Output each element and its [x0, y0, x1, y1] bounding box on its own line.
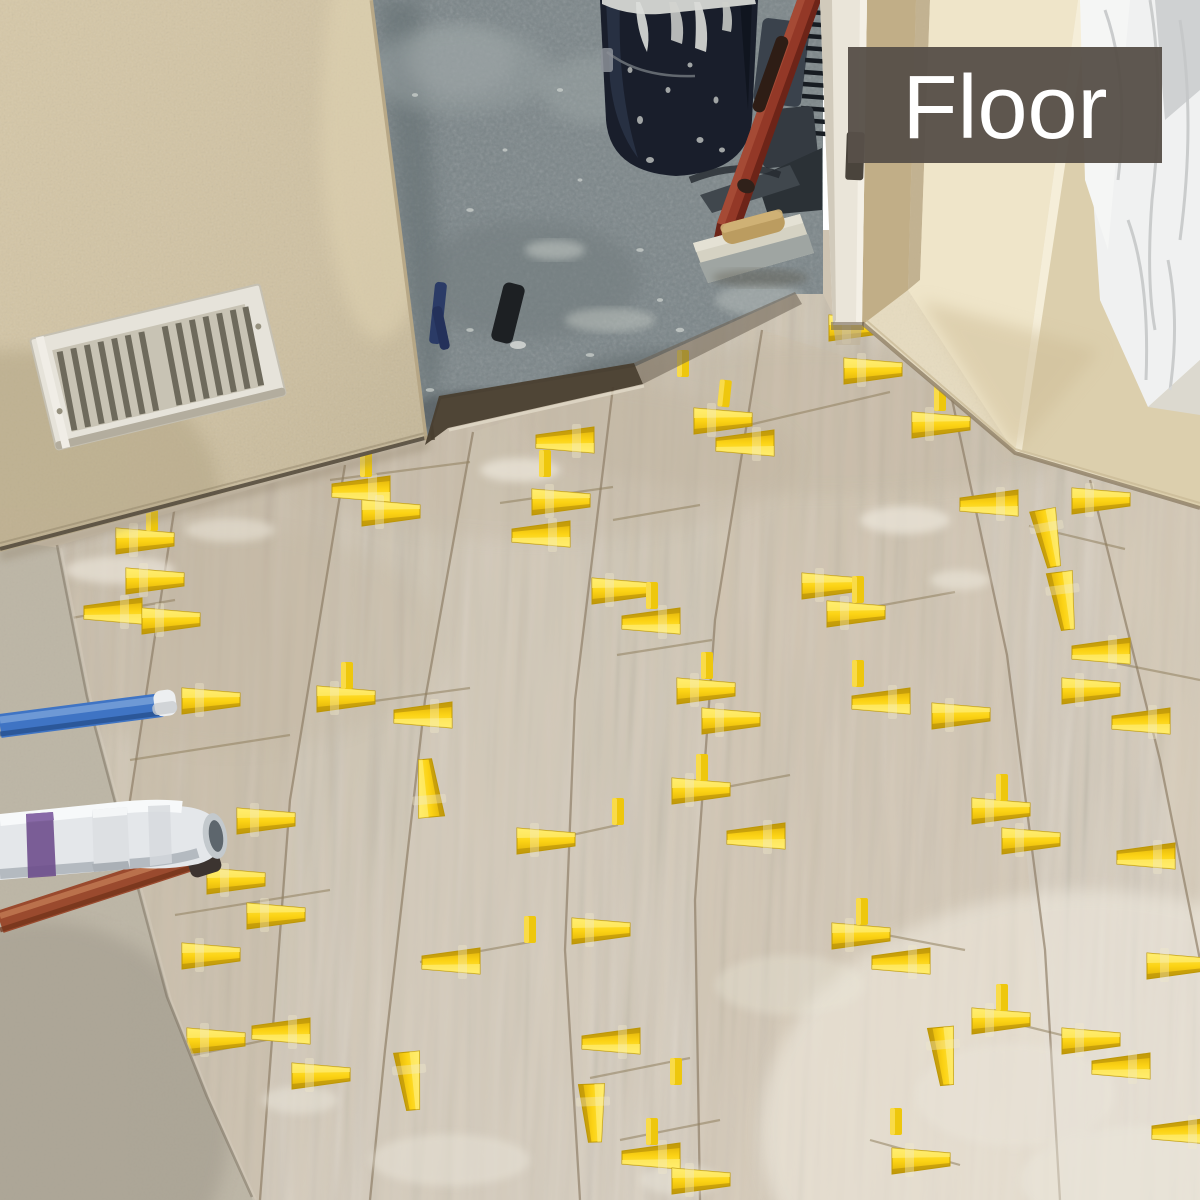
svg-text:Floor: Floor — [902, 58, 1107, 158]
